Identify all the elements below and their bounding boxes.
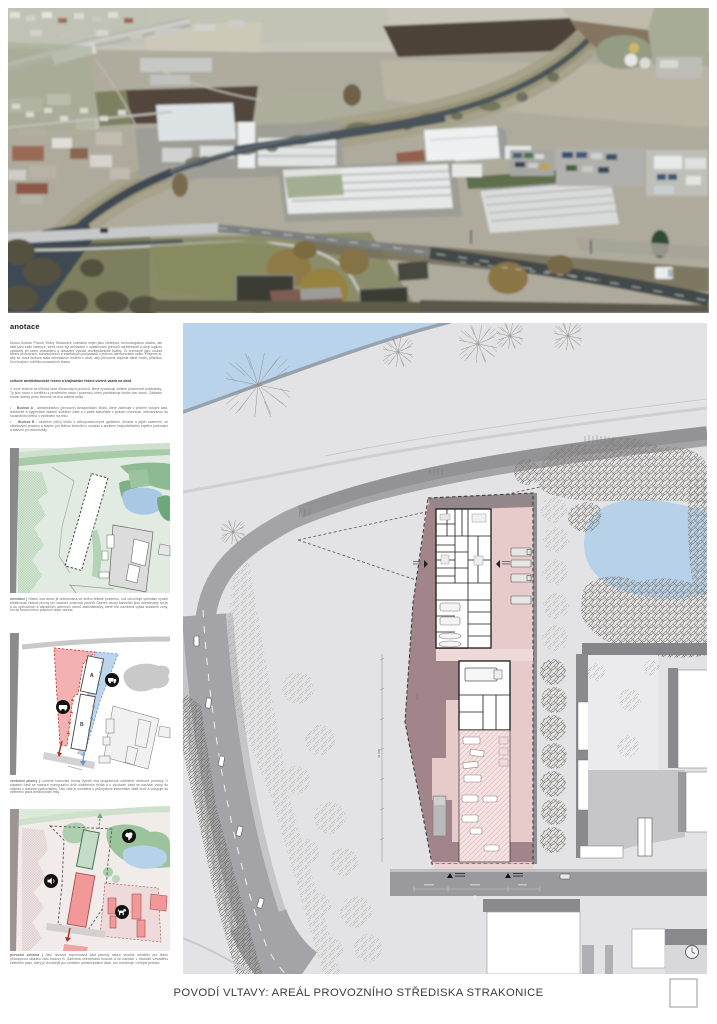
svg-text:B: B <box>80 722 84 728</box>
svg-text:8 500: 8 500 <box>415 693 419 700</box>
svg-text:A: A <box>90 673 94 679</box>
svg-text:44 500: 44 500 <box>377 748 381 758</box>
